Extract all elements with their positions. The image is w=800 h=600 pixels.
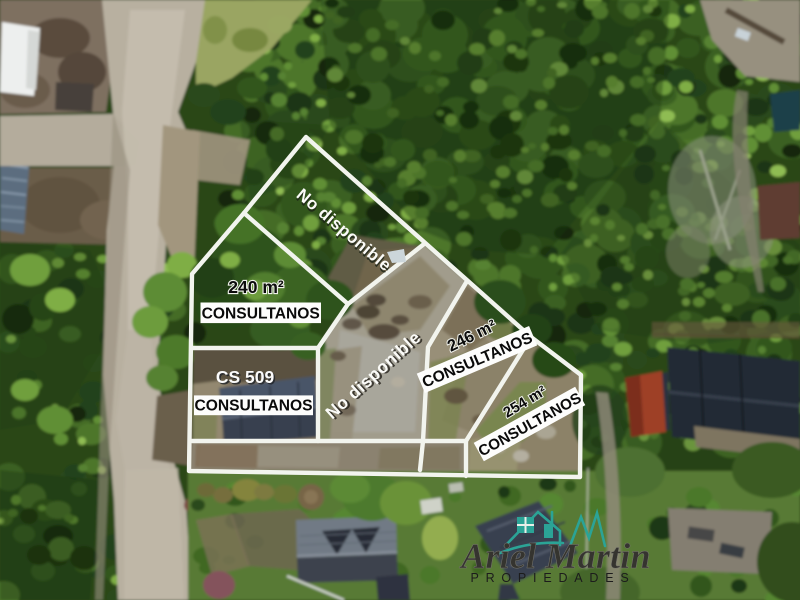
svg-text:Ariel Martin: Ariel Martin: [459, 536, 650, 576]
svg-text:CONSULTANOS: CONSULTANOS: [194, 398, 312, 415]
svg-text:240 m²: 240 m²: [228, 277, 284, 297]
svg-text:CS 509: CS 509: [216, 367, 275, 387]
svg-text:PROPIEDADES: PROPIEDADES: [470, 571, 635, 585]
svg-text:CONSULTANOS: CONSULTANOS: [202, 305, 320, 322]
